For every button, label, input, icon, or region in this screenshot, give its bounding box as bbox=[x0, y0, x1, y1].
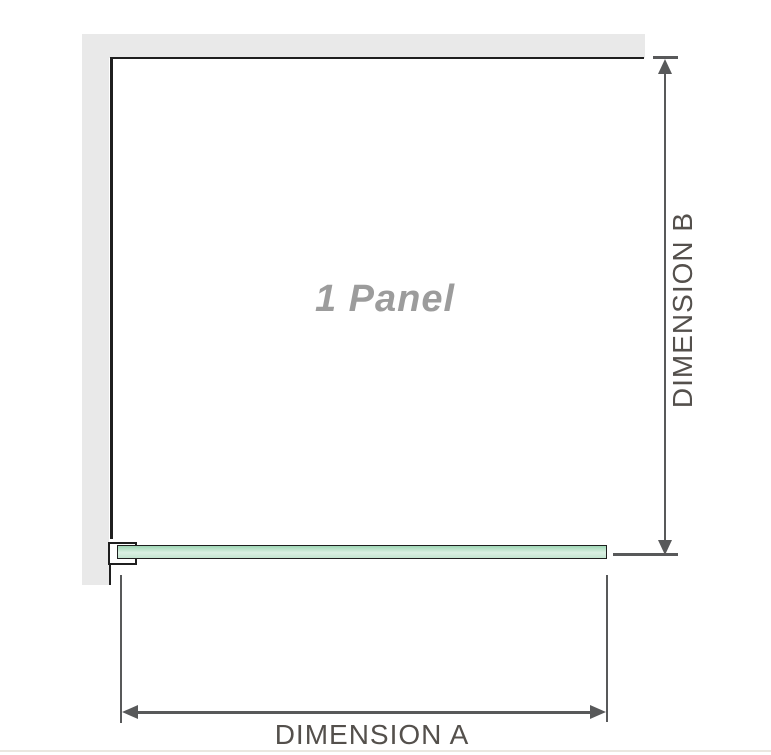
panel-count-label: 1 Panel bbox=[235, 277, 535, 321]
dimension-a-line bbox=[130, 711, 598, 714]
wall-edge-line bbox=[109, 563, 111, 585]
page-baseline-rule bbox=[0, 750, 771, 752]
panel-outline-top bbox=[110, 57, 644, 60]
glass-panel-bar bbox=[117, 545, 607, 559]
dimension-b-label: DIMENSION B bbox=[668, 160, 698, 460]
dimension-a-label: DIMENSION A bbox=[222, 719, 522, 751]
shower-panel-diagram: 1 Panel DIMENSION B DIMENSION A bbox=[0, 0, 771, 755]
dimension-a-extension-left bbox=[120, 575, 122, 723]
arrow-right-icon bbox=[590, 705, 606, 719]
wall-surface-side bbox=[82, 34, 109, 585]
dimension-b-line bbox=[664, 70, 667, 540]
arrow-down-icon bbox=[658, 540, 672, 555]
dimension-a-extension-right bbox=[606, 575, 608, 722]
panel-outline-left bbox=[110, 57, 113, 539]
arrow-up-icon bbox=[658, 59, 672, 74]
arrow-left-icon bbox=[122, 705, 138, 719]
wall-surface-top bbox=[82, 34, 645, 58]
